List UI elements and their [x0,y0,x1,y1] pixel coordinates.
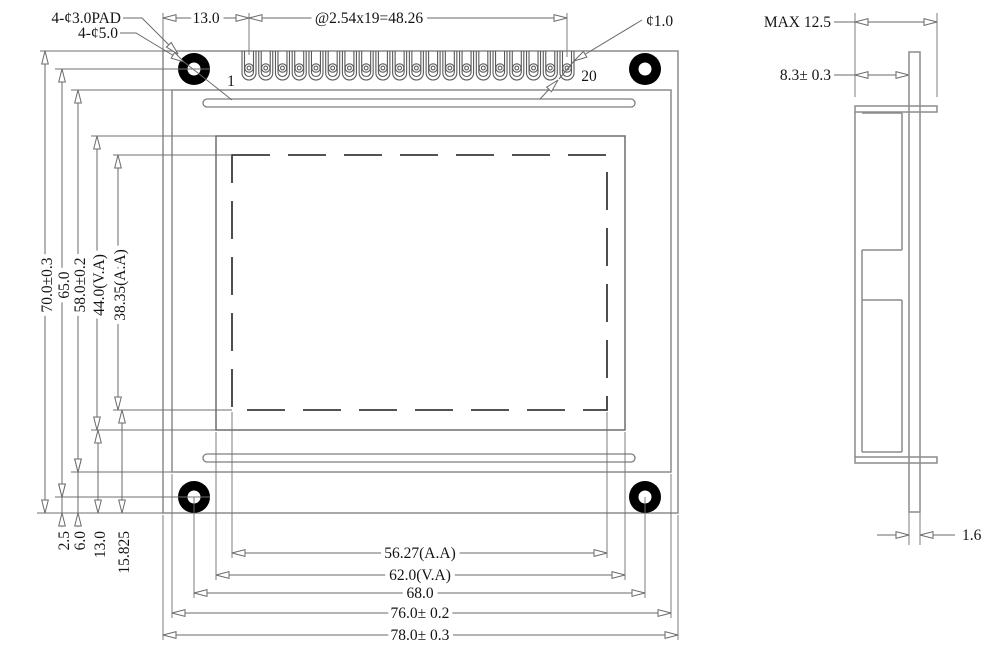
side-top-tab [855,106,937,112]
pin-hole-center [297,66,301,70]
pin-hole-leader-upper [574,20,642,61]
dim-board-width: 78.0± 0.3 [391,627,450,644]
side-bottom-tab [855,457,937,463]
pin-hole-ring [513,64,521,72]
pin-hole-ring [429,64,437,72]
dim-pin-pitch: @2.54x19=48.26 [315,10,424,27]
pin-20-label: 20 [581,68,597,85]
pin-hole-center [314,66,318,70]
pin-hole-ring [312,64,320,72]
side-pcb [909,52,920,512]
dim-front-to-pcb: 8.3± 0.3 [780,67,831,84]
dim-hole-to-edge: 2.5 [56,531,73,551]
dim-viewing-to-edge: 13.0 [92,531,109,558]
dim-pin1-offset: 13.0 [192,10,219,27]
dim-frame-height: 58.0±0.2 [72,257,89,312]
top-slot [203,99,635,107]
pin-hole-center [515,66,519,70]
pin-hole-center [414,66,418,70]
pin-hole-ring [546,64,554,72]
technical-drawing: 4-¢3.0PAD 4-¢5.0 ¢1.0 1 20 13.0 @2.54x19… [0,0,992,654]
dim-active-area-width: 56.27(A.A) [384,545,455,562]
dim-hole-spacing-v: 65.0 [56,271,73,298]
front-view [163,51,678,513]
dim-board-height: 70.0±0.3 [39,257,56,312]
pin-hole-ring [295,64,303,72]
viewing-area-outline [216,136,625,430]
pin-hole-ring [245,64,253,72]
pin-hole-center [364,66,368,70]
pin-hole-center [448,66,452,70]
pin-hole-ring [412,64,420,72]
dim-hole-spacing-h: 68.0 [406,585,433,602]
pin-hole-ring [496,64,504,72]
pin-hole-center [264,66,268,70]
pin-hole-ring [529,64,537,72]
pin-hole-ring [328,64,336,72]
pin-hole-ring [362,64,370,72]
pin-hole-ring [446,64,454,72]
pin-hole-ring [345,64,353,72]
pin-hole-center [398,66,402,70]
drawing-canvas: 4-¢3.0PAD 4-¢5.0 ¢1.0 1 20 13.0 @2.54x19… [0,0,992,654]
dimension-lines [45,18,955,635]
dim-active-area-height: 38.35(A.A) [112,249,129,320]
active-area-dashed-outline [232,155,607,410]
pad-callout-leader [123,18,178,54]
mounting-holes [178,53,661,513]
pin-hole-center [548,66,552,70]
pin-hole-callout-label: ¢1.0 [646,13,673,30]
dim-viewing-area-height: 44.0(V.A) [91,254,108,316]
pin-hole-ring [379,64,387,72]
side-body-inner-profile [862,113,902,452]
dim-active-to-edge: 15.825 [116,531,133,574]
annotations: 4-¢3.0PAD 4-¢5.0 ¢1.0 1 20 13.0 @2.54x19… [39,10,982,644]
pin-hole-center [532,66,536,70]
dim-max-depth: MAX 12.5 [764,14,831,31]
pcb-outline [163,51,678,513]
pin-hole-ring [479,64,487,72]
pin-hole-ring [395,64,403,72]
pin-hole-ring [262,64,270,72]
dim-frame-width: 76.0± 0.2 [391,605,450,622]
side-view [855,52,937,512]
pin-hole-center [431,66,435,70]
mounting-hole-callout-label: 4-¢5.0 [78,25,118,42]
dim-frame-to-edge: 6.0 [72,531,89,551]
pin-header [242,51,574,80]
pin-1-label: 1 [227,73,235,90]
bottom-slot [203,454,635,462]
pin-hole-center [281,66,285,70]
dim-viewing-area-width: 62.0(V.A) [389,567,451,584]
mounting-hole-top-right-bore [639,63,652,76]
pin-hole-ring [278,64,286,72]
pin-hole-center [348,66,352,70]
bezel-frame [172,90,671,472]
pin-hole-center [465,66,469,70]
dim-pcb-thickness: 1.6 [962,527,982,544]
pin-hole-ring [563,64,571,72]
hole-callout-leader [120,33,184,62]
pin-hole-center [498,66,502,70]
pin-hole-center [247,66,251,70]
pin-hole-center [331,66,335,70]
pin-hole-ring [462,64,470,72]
pin-hole-center [481,66,485,70]
pin-hole-center [381,66,385,70]
